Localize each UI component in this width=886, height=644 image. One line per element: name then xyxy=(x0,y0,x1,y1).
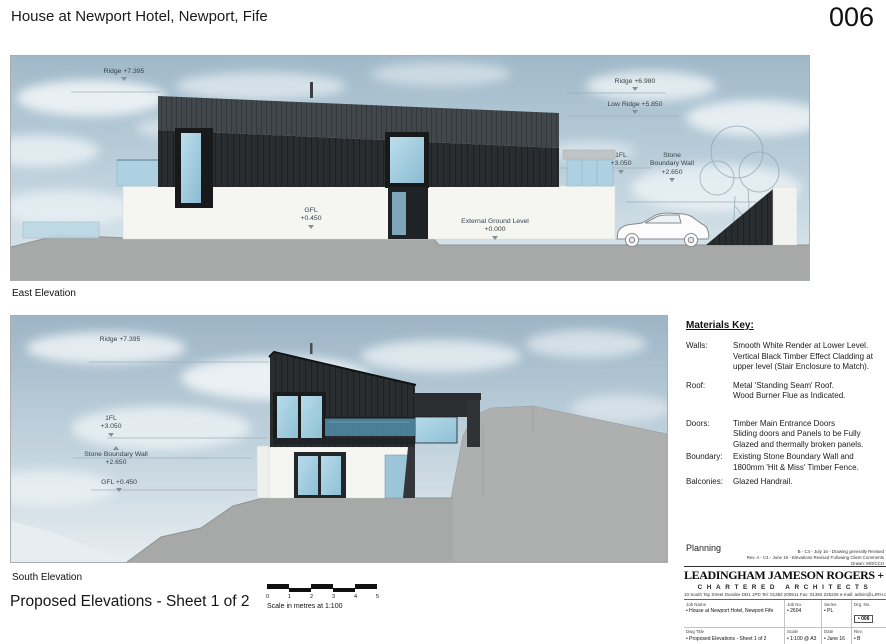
annotation-ridge-left: Ridge +7.395 xyxy=(79,68,169,81)
field-scale: Scale • 1:100 @ A3 xyxy=(785,628,822,644)
level-marker-icon xyxy=(618,170,624,174)
annotation-boundary-wall: Stone Boundary Wall +2.650 xyxy=(633,152,711,182)
scale-tick: 3 xyxy=(332,594,335,600)
scale-tick: 0 xyxy=(266,594,269,600)
stone-wall-end xyxy=(257,446,269,498)
materials-key-title: Materials Key: xyxy=(686,320,886,331)
annotation-external-ground: External Ground Level +0.000 xyxy=(439,218,551,240)
right-glazing xyxy=(415,417,457,443)
scale-caption: Scale in metres at 1:100 xyxy=(267,603,343,610)
annotation-first-floor: 1FL +3.050 xyxy=(89,415,133,437)
south-elevation-art xyxy=(11,316,667,562)
scale-segment xyxy=(267,584,289,588)
field-job-name: Job Name • House at Newport Hotel, Newpo… xyxy=(684,600,785,628)
scale-segment xyxy=(355,584,377,588)
garden-glass-balustrade xyxy=(23,222,99,238)
sliding-doors xyxy=(294,452,346,498)
title-block: LEADINGHAM JAMESON ROGERS + HYND CHARTER… xyxy=(684,566,886,644)
page-title: House at Newport Hotel, Newport, Fife xyxy=(11,8,268,25)
firm-name: LEADINGHAM JAMESON ROGERS + HYND xyxy=(684,568,886,583)
low-wing-parapet xyxy=(415,393,481,400)
field-job-no: Job No. • 2604 xyxy=(785,600,822,628)
scale-tick: 1 xyxy=(288,594,291,600)
level-marker-icon xyxy=(113,446,119,450)
stair-window xyxy=(175,128,213,208)
field-drg-no: Drg. No. • 006 xyxy=(852,600,886,628)
balcony-glazed-handrail xyxy=(325,417,415,436)
sheet-number: 006 xyxy=(829,2,874,33)
materials-item-balconies: Balconies: Glazed Handrail. xyxy=(686,477,886,488)
field-rev: Rev. • B xyxy=(852,628,886,644)
wood-burner-flue xyxy=(310,82,313,98)
level-marker-icon xyxy=(632,87,638,91)
annotation-low-ridge: Low Ridge +5.850 xyxy=(585,101,685,114)
level-marker-icon xyxy=(308,225,314,229)
sheet-title: Proposed Elevations - Sheet 1 of 2 xyxy=(10,593,250,611)
level-marker-icon xyxy=(632,110,638,114)
level-marker-icon xyxy=(492,236,498,240)
south-elevation-caption: South Elevation xyxy=(12,572,82,583)
materials-item-roof: Roof: Metal 'Standing Seam' Roof. Wood B… xyxy=(686,381,886,402)
scale-segment xyxy=(333,588,355,592)
firm-address: 10 South Tay Street Dundee DD1 1PD Tel: … xyxy=(684,592,886,600)
annotation-ridge: Ridge +7.395 xyxy=(75,336,165,344)
annotation-ridge-right: Ridge +6.980 xyxy=(593,78,677,91)
scale-tick: 4 xyxy=(354,594,357,600)
hillside xyxy=(451,406,667,562)
scale-tick: 5 xyxy=(376,594,379,600)
entrance-door xyxy=(388,187,428,239)
scale-bar: 0 1 2 3 4 5 Scale in metres at 1:100 xyxy=(267,584,379,618)
stair-enclosure xyxy=(467,400,480,447)
field-series: Series • PL xyxy=(822,600,852,628)
boundary-wall-pillar xyxy=(773,187,797,245)
materials-key: Materials Key: Walls: Smooth White Rende… xyxy=(686,320,886,488)
wood-burner-flue xyxy=(310,343,313,354)
firm-subtitle: CHARTERED ARCHITECTS xyxy=(684,584,886,591)
materials-item-walls: Walls: Smooth White Render at Lower Leve… xyxy=(686,341,886,373)
revision-notes: B - C4 - July 16 - Drawing generally Rev… xyxy=(654,549,884,567)
level-marker-icon xyxy=(108,433,114,437)
annotation-boundary-wall: Stone Boundary Wall +2.650 xyxy=(51,446,181,468)
annotation-ground-floor: GFL +0.450 xyxy=(83,479,155,492)
east-elevation-caption: East Elevation xyxy=(12,288,76,299)
level-marker-icon xyxy=(121,77,127,81)
materials-item-doors: Doors: Timber Main Entrance Doors Slidin… xyxy=(686,419,886,451)
scale-segment xyxy=(289,588,311,592)
south-elevation-drawing: Ridge +7.395 1FL +3.050 Stone Boundary W… xyxy=(10,315,668,563)
annotation-ground-floor: GFL +0.450 xyxy=(283,207,339,229)
drawing-sheet: House at Newport Hotel, Newport, Fife 00… xyxy=(0,0,886,627)
title-block-table: Job Name • House at Newport Hotel, Newpo… xyxy=(684,600,886,644)
field-date: Date • June 16 xyxy=(822,628,852,644)
scale-segment xyxy=(311,584,333,588)
level-marker-icon xyxy=(116,488,122,492)
balcony-fascia xyxy=(273,438,415,444)
scale-tick: 2 xyxy=(310,594,313,600)
upper-window xyxy=(385,132,429,188)
field-dwg-title: Dwg Title • Proposed Elevations - Sheet … xyxy=(684,628,785,644)
east-elevation-drawing: Ridge +7.395 Ridge +6.980 Low Ridge +5.8… xyxy=(10,55,810,281)
materials-item-boundary: Boundary: Existing Stone Boundary Wall a… xyxy=(686,452,886,473)
upper-window xyxy=(273,392,326,444)
level-marker-icon xyxy=(669,178,675,182)
